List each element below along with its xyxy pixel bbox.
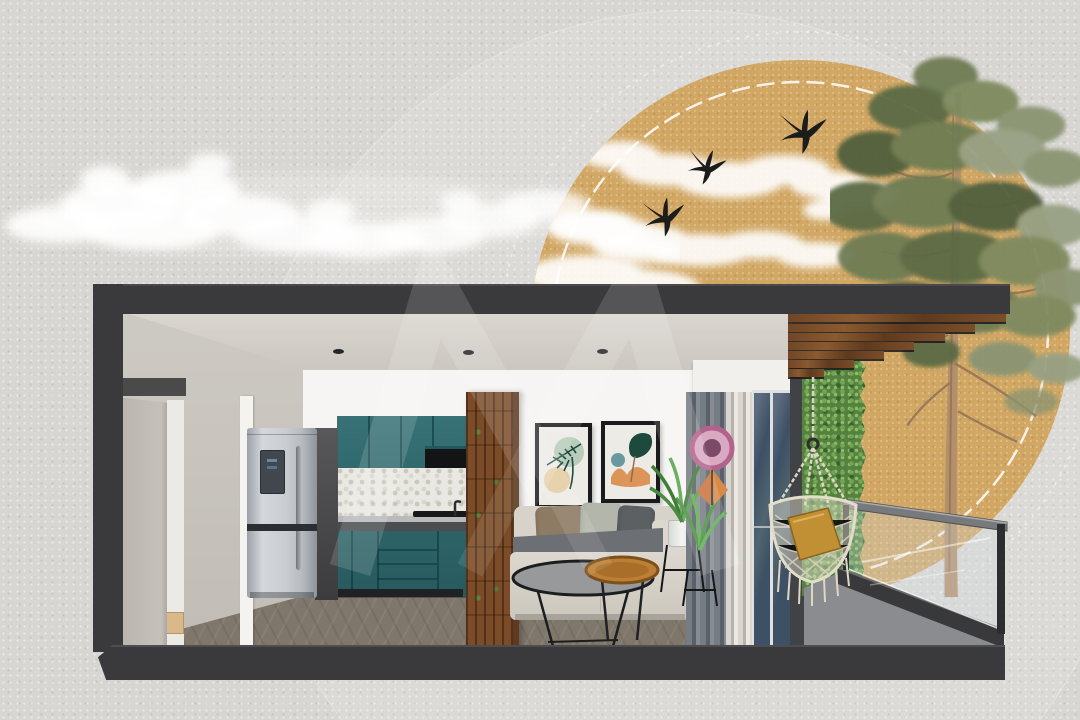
floor-slab	[98, 645, 1005, 680]
furniture-details	[400, 390, 740, 660]
faucet	[455, 501, 461, 516]
bird-icon	[639, 193, 690, 240]
bird-silhouette-1	[639, 193, 690, 240]
moth-decor	[697, 470, 728, 505]
roof-slab	[93, 284, 1010, 314]
collage-canvas	[0, 0, 1080, 720]
ceiling-light-2	[463, 350, 474, 355]
dreamcatcher	[692, 394, 732, 468]
cloud-bank	[0, 100, 680, 290]
fridge-handle	[296, 446, 301, 570]
cabinet-end-panel	[315, 428, 338, 600]
hanging-chair	[760, 310, 870, 610]
chair-ring	[808, 439, 818, 449]
clouds-left	[5, 153, 680, 264]
fridge-display	[260, 450, 285, 494]
ceiling-light-1	[333, 349, 344, 354]
bird-icon	[684, 146, 730, 188]
bird-silhouette-2	[684, 146, 730, 188]
plant-back-stand	[661, 545, 704, 592]
door-edge	[167, 400, 184, 645]
bird-silhouette-3	[776, 106, 831, 156]
left-wall	[93, 284, 123, 652]
tray-table	[586, 557, 658, 640]
fridge-freezer-seam	[247, 524, 317, 531]
plant-front-stand	[683, 570, 717, 606]
refrigerator	[247, 428, 317, 598]
bird-icon	[776, 106, 831, 156]
ceiling-light-3	[597, 349, 608, 354]
railing-post-right	[997, 524, 1005, 634]
